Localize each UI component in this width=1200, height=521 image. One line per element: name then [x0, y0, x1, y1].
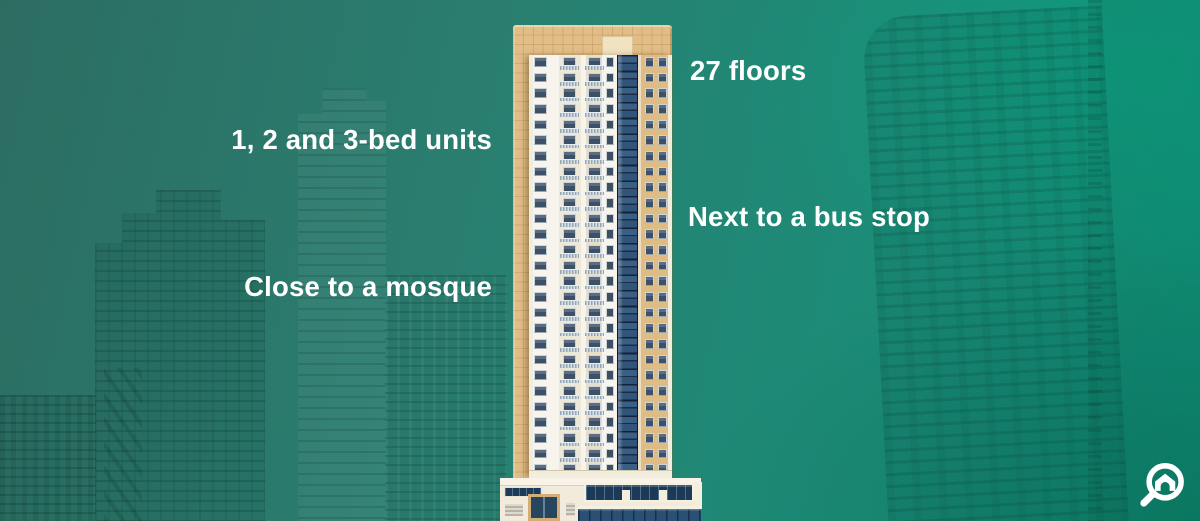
balcony-railing [585, 347, 604, 352]
balcony-railing [585, 285, 604, 290]
window [606, 261, 614, 271]
window [645, 386, 654, 396]
balcony-railing [585, 206, 604, 211]
window [658, 120, 667, 130]
floor-row [529, 290, 672, 306]
window [534, 339, 547, 349]
balcony-railing [560, 97, 579, 102]
infographic-canvas: 27 floors 1, 2 and 3-bed units Next to a… [0, 0, 1200, 521]
balcony-railing [585, 363, 604, 368]
podium-right-pier [694, 482, 702, 509]
balcony-railing [585, 316, 604, 321]
balcony-railing [585, 159, 604, 164]
floor-row [529, 447, 672, 463]
background-skyline-mid-block [385, 275, 507, 521]
floor-row [529, 227, 672, 243]
window [534, 167, 547, 177]
balcony-railing [585, 112, 604, 117]
balcony-railing [560, 363, 579, 368]
balcony-railing [560, 426, 579, 431]
window [606, 229, 614, 239]
window [645, 88, 654, 98]
floor-row [529, 384, 672, 400]
window [606, 308, 614, 318]
window [658, 308, 667, 318]
podium-vent-grille [566, 503, 575, 516]
building-facade [529, 55, 672, 478]
balcony-railing [560, 238, 579, 243]
window [606, 323, 614, 333]
window [606, 182, 614, 192]
window [645, 339, 654, 349]
balcony-railing [585, 191, 604, 196]
window [606, 433, 614, 443]
balcony-railing [585, 238, 604, 243]
window [658, 386, 667, 396]
window [658, 276, 667, 286]
floor-row [529, 415, 672, 431]
house-search-icon [1131, 453, 1195, 517]
podium-entrance-door [528, 494, 560, 521]
window [606, 167, 614, 177]
label-units: 1, 2 and 3-bed units [0, 125, 492, 155]
window [606, 417, 614, 427]
balcony-railing [560, 81, 579, 86]
window [534, 73, 547, 83]
balcony-railing [585, 222, 604, 227]
window [606, 339, 614, 349]
window [658, 323, 667, 333]
window [658, 370, 667, 380]
floor-row [529, 259, 672, 275]
balcony-railing [585, 253, 604, 258]
window [645, 182, 654, 192]
window [658, 104, 667, 114]
window [645, 57, 654, 67]
background-skyline-hotel [95, 190, 265, 521]
window [534, 135, 547, 145]
window [658, 214, 667, 224]
window [606, 73, 614, 83]
floor-row [529, 180, 672, 196]
window [645, 167, 654, 177]
background-skyline-bottom-left [0, 395, 96, 521]
window [658, 339, 667, 349]
window [534, 88, 547, 98]
floor-row [529, 71, 672, 87]
background-skyline-right-tower [862, 5, 1129, 521]
window [606, 198, 614, 208]
window [645, 151, 654, 161]
balcony-railing [560, 300, 579, 305]
balcony-railing [585, 442, 604, 447]
window [534, 198, 547, 208]
floor-row [529, 368, 672, 384]
balcony-railing [585, 410, 604, 415]
window [645, 276, 654, 286]
window [534, 104, 547, 114]
balcony-railing [560, 316, 579, 321]
window [645, 355, 654, 365]
podium-parapet-post [659, 490, 667, 502]
window [645, 433, 654, 443]
balcony-railing [560, 222, 579, 227]
window [645, 370, 654, 380]
floor-row [529, 165, 672, 181]
balcony-railing [560, 332, 579, 337]
window [658, 167, 667, 177]
label-mosque: Close to a mosque [0, 272, 492, 302]
window [645, 214, 654, 224]
window [645, 73, 654, 83]
window [658, 229, 667, 239]
window [658, 433, 667, 443]
balcony-railing [560, 442, 579, 447]
window [534, 120, 547, 130]
window [606, 135, 614, 145]
balcony-railing [560, 206, 579, 211]
window [645, 449, 654, 459]
floor-row [529, 55, 672, 71]
window [606, 292, 614, 302]
floor-row [529, 243, 672, 259]
window [534, 182, 547, 192]
window [645, 120, 654, 130]
podium-parapet-post [622, 490, 630, 502]
window [534, 245, 547, 255]
balcony-railing [560, 128, 579, 133]
label-bus-stop: Next to a bus stop [688, 202, 930, 232]
window [645, 261, 654, 271]
floor-row [529, 400, 672, 416]
podium-glass-ribbon [584, 483, 694, 502]
window [658, 449, 667, 459]
window [534, 355, 547, 365]
balcony-railing [560, 285, 579, 290]
window [658, 355, 667, 365]
window [606, 88, 614, 98]
balcony-railing [585, 97, 604, 102]
balcony-railing [560, 144, 579, 149]
balcony-railing [585, 300, 604, 305]
window [658, 245, 667, 255]
window [645, 417, 654, 427]
window [534, 386, 547, 396]
window [606, 151, 614, 161]
window [658, 151, 667, 161]
window [534, 402, 547, 412]
balcony-railing [560, 65, 579, 70]
podium-storefront-glass [578, 506, 701, 521]
window [606, 355, 614, 365]
building-ground-band [529, 470, 672, 478]
window [658, 57, 667, 67]
window [606, 276, 614, 286]
balcony-railing [560, 379, 579, 384]
floor-row [529, 196, 672, 212]
floor-row [529, 86, 672, 102]
window [534, 417, 547, 427]
window [658, 88, 667, 98]
window [645, 229, 654, 239]
balcony-railing [560, 395, 579, 400]
balcony-railing [560, 253, 579, 258]
balcony-railing [585, 332, 604, 337]
window [606, 120, 614, 130]
window [606, 402, 614, 412]
balcony-railing [560, 410, 579, 415]
balcony-railing [585, 65, 604, 70]
background-skyline-zigzag [104, 368, 142, 521]
window [606, 245, 614, 255]
balcony-railing [560, 159, 579, 164]
background-skyline-right-edge [1088, 0, 1200, 521]
window [658, 417, 667, 427]
window [534, 292, 547, 302]
window [645, 402, 654, 412]
balcony-railing [585, 269, 604, 274]
window [658, 135, 667, 145]
balcony-railing [585, 395, 604, 400]
window [606, 386, 614, 396]
window [606, 214, 614, 224]
window [534, 308, 547, 318]
window [658, 198, 667, 208]
window [645, 323, 654, 333]
window [645, 198, 654, 208]
floor-row [529, 431, 672, 447]
floor-row [529, 337, 672, 353]
window [645, 292, 654, 302]
balcony-railing [560, 112, 579, 117]
balcony-railing [560, 269, 579, 274]
window [606, 370, 614, 380]
window [645, 104, 654, 114]
podium-vent-grille [505, 504, 523, 516]
floor-row [529, 118, 672, 134]
window [645, 308, 654, 318]
balcony-railing [585, 128, 604, 133]
window [534, 229, 547, 239]
window [534, 276, 547, 286]
window [534, 449, 547, 459]
window [534, 57, 547, 67]
window [658, 292, 667, 302]
label-floors: 27 floors [690, 56, 806, 86]
window [606, 449, 614, 459]
balcony-railing [560, 457, 579, 462]
floor-row [529, 149, 672, 165]
balcony-railing [585, 144, 604, 149]
floor-row [529, 212, 672, 228]
window [534, 323, 547, 333]
floor-row [529, 321, 672, 337]
floor-row [529, 306, 672, 322]
floor-row [529, 102, 672, 118]
window [658, 402, 667, 412]
window [658, 73, 667, 83]
window [658, 182, 667, 192]
balcony-railing [585, 457, 604, 462]
balcony-railing [585, 81, 604, 86]
balcony-railing [585, 426, 604, 431]
window [645, 135, 654, 145]
balcony-railing [560, 175, 579, 180]
balcony-railing [585, 175, 604, 180]
window [534, 433, 547, 443]
building-podium [500, 478, 701, 521]
window [645, 245, 654, 255]
balcony-railing [560, 191, 579, 196]
window [606, 104, 614, 114]
balcony-railing [560, 347, 579, 352]
floor-row [529, 353, 672, 369]
window [534, 370, 547, 380]
window [534, 214, 547, 224]
window [658, 261, 667, 271]
floor-row [529, 133, 672, 149]
window [606, 57, 614, 67]
window [534, 261, 547, 271]
balcony-railing [585, 379, 604, 384]
floor-row [529, 274, 672, 290]
window [534, 151, 547, 161]
